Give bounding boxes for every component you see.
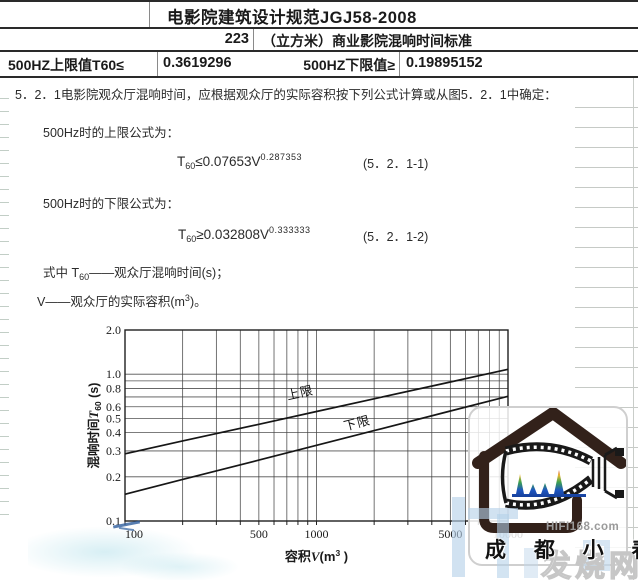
svg-text:2.0: 2.0 <box>106 323 121 337</box>
svg-text:0.4: 0.4 <box>106 426 121 440</box>
svg-text:0.3: 0.3 <box>106 444 121 458</box>
svg-text:1.0: 1.0 <box>106 367 121 381</box>
watermark-author-name: 成 都 小 春 <box>485 534 638 564</box>
svg-text:0.2: 0.2 <box>106 470 121 484</box>
svg-text:混响时间T60 (s): 混响时间T60 (s) <box>86 383 103 469</box>
svg-text:0.8: 0.8 <box>106 381 121 395</box>
svg-text:容积V(m3 ): 容积V(m3 ) <box>284 548 348 564</box>
svg-text:上限: 上限 <box>285 383 314 402</box>
svg-text:5000: 5000 <box>438 527 462 541</box>
spreadsheet-screenshot: 电影院建筑设计规范JGJ58-2008 223 （立方米）商业影院混响时间标准 … <box>0 0 638 580</box>
svg-text:下限: 下限 <box>342 413 372 433</box>
svg-text:500: 500 <box>250 527 268 541</box>
svg-text:1000: 1000 <box>305 527 329 541</box>
watermark-site-url: HIFI168.com <box>546 521 619 533</box>
svg-text:0.6: 0.6 <box>106 400 121 414</box>
